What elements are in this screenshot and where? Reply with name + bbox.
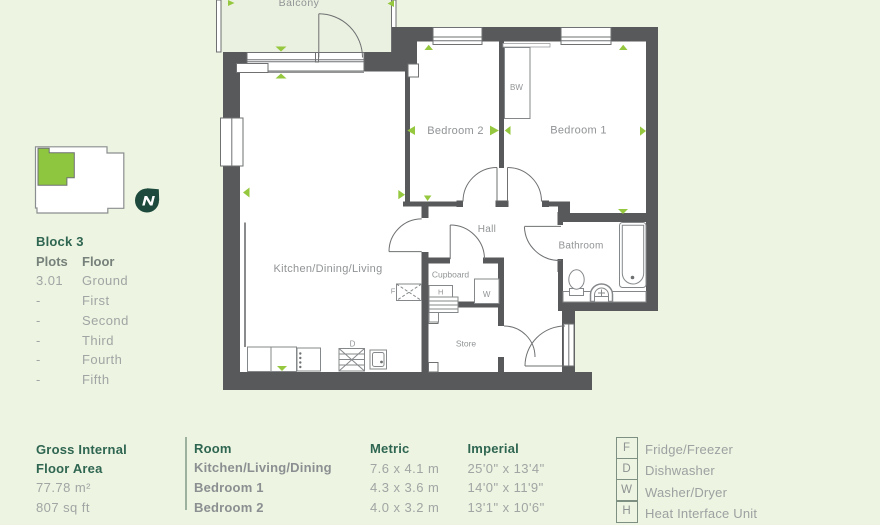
svg-text:F: F — [391, 287, 396, 296]
svg-text:Store: Store — [456, 338, 477, 348]
svg-text:H: H — [438, 288, 443, 297]
svg-text:Bathroom: Bathroom — [559, 241, 604, 252]
svg-text:Bedroom 1: Bedroom 1 — [550, 125, 607, 137]
svg-text:Kitchen/Dining/Living: Kitchen/Dining/Living — [273, 263, 382, 275]
svg-text:Hall: Hall — [478, 224, 496, 235]
svg-text:Balcony: Balcony — [279, 0, 320, 9]
svg-text:D: D — [350, 340, 356, 349]
svg-text:BW: BW — [510, 83, 523, 92]
svg-text:W: W — [483, 290, 491, 299]
svg-text:Bedroom 2: Bedroom 2 — [427, 125, 484, 137]
svg-text:Cupboard: Cupboard — [432, 270, 470, 280]
